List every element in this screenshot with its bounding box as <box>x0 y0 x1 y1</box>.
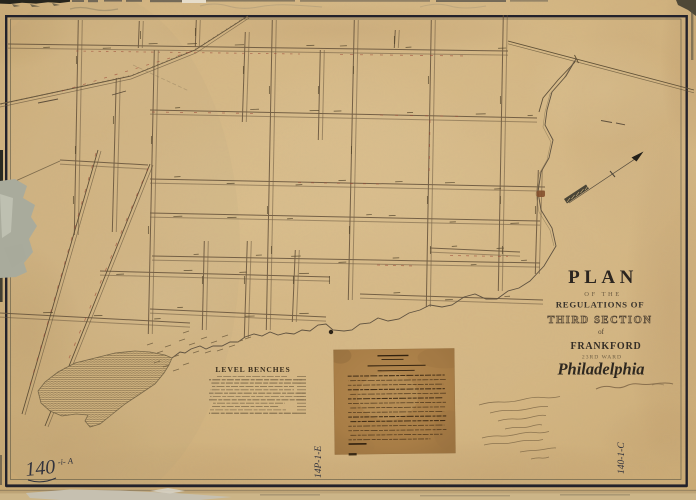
svg-text:140-1-C: 140-1-C <box>617 442 627 474</box>
svg-text:Philadelphia: Philadelphia <box>556 360 644 379</box>
svg-text:of: of <box>598 328 605 336</box>
svg-text:REGULATIONS OF: REGULATIONS OF <box>556 300 645 310</box>
svg-text:THIRD SECTION: THIRD SECTION <box>547 315 652 326</box>
svg-text:-i- A: -i- A <box>57 455 74 467</box>
svg-text:OF THE: OF THE <box>584 291 621 298</box>
svg-text:140: 140 <box>24 456 56 481</box>
svg-text:PLAN: PLAN <box>568 267 638 288</box>
svg-text:FRANKFORD: FRANKFORD <box>570 341 641 352</box>
svg-text:14P-1-E: 14P-1-E <box>314 446 324 478</box>
svg-text:LEVEL BENCHES: LEVEL BENCHES <box>215 365 290 374</box>
